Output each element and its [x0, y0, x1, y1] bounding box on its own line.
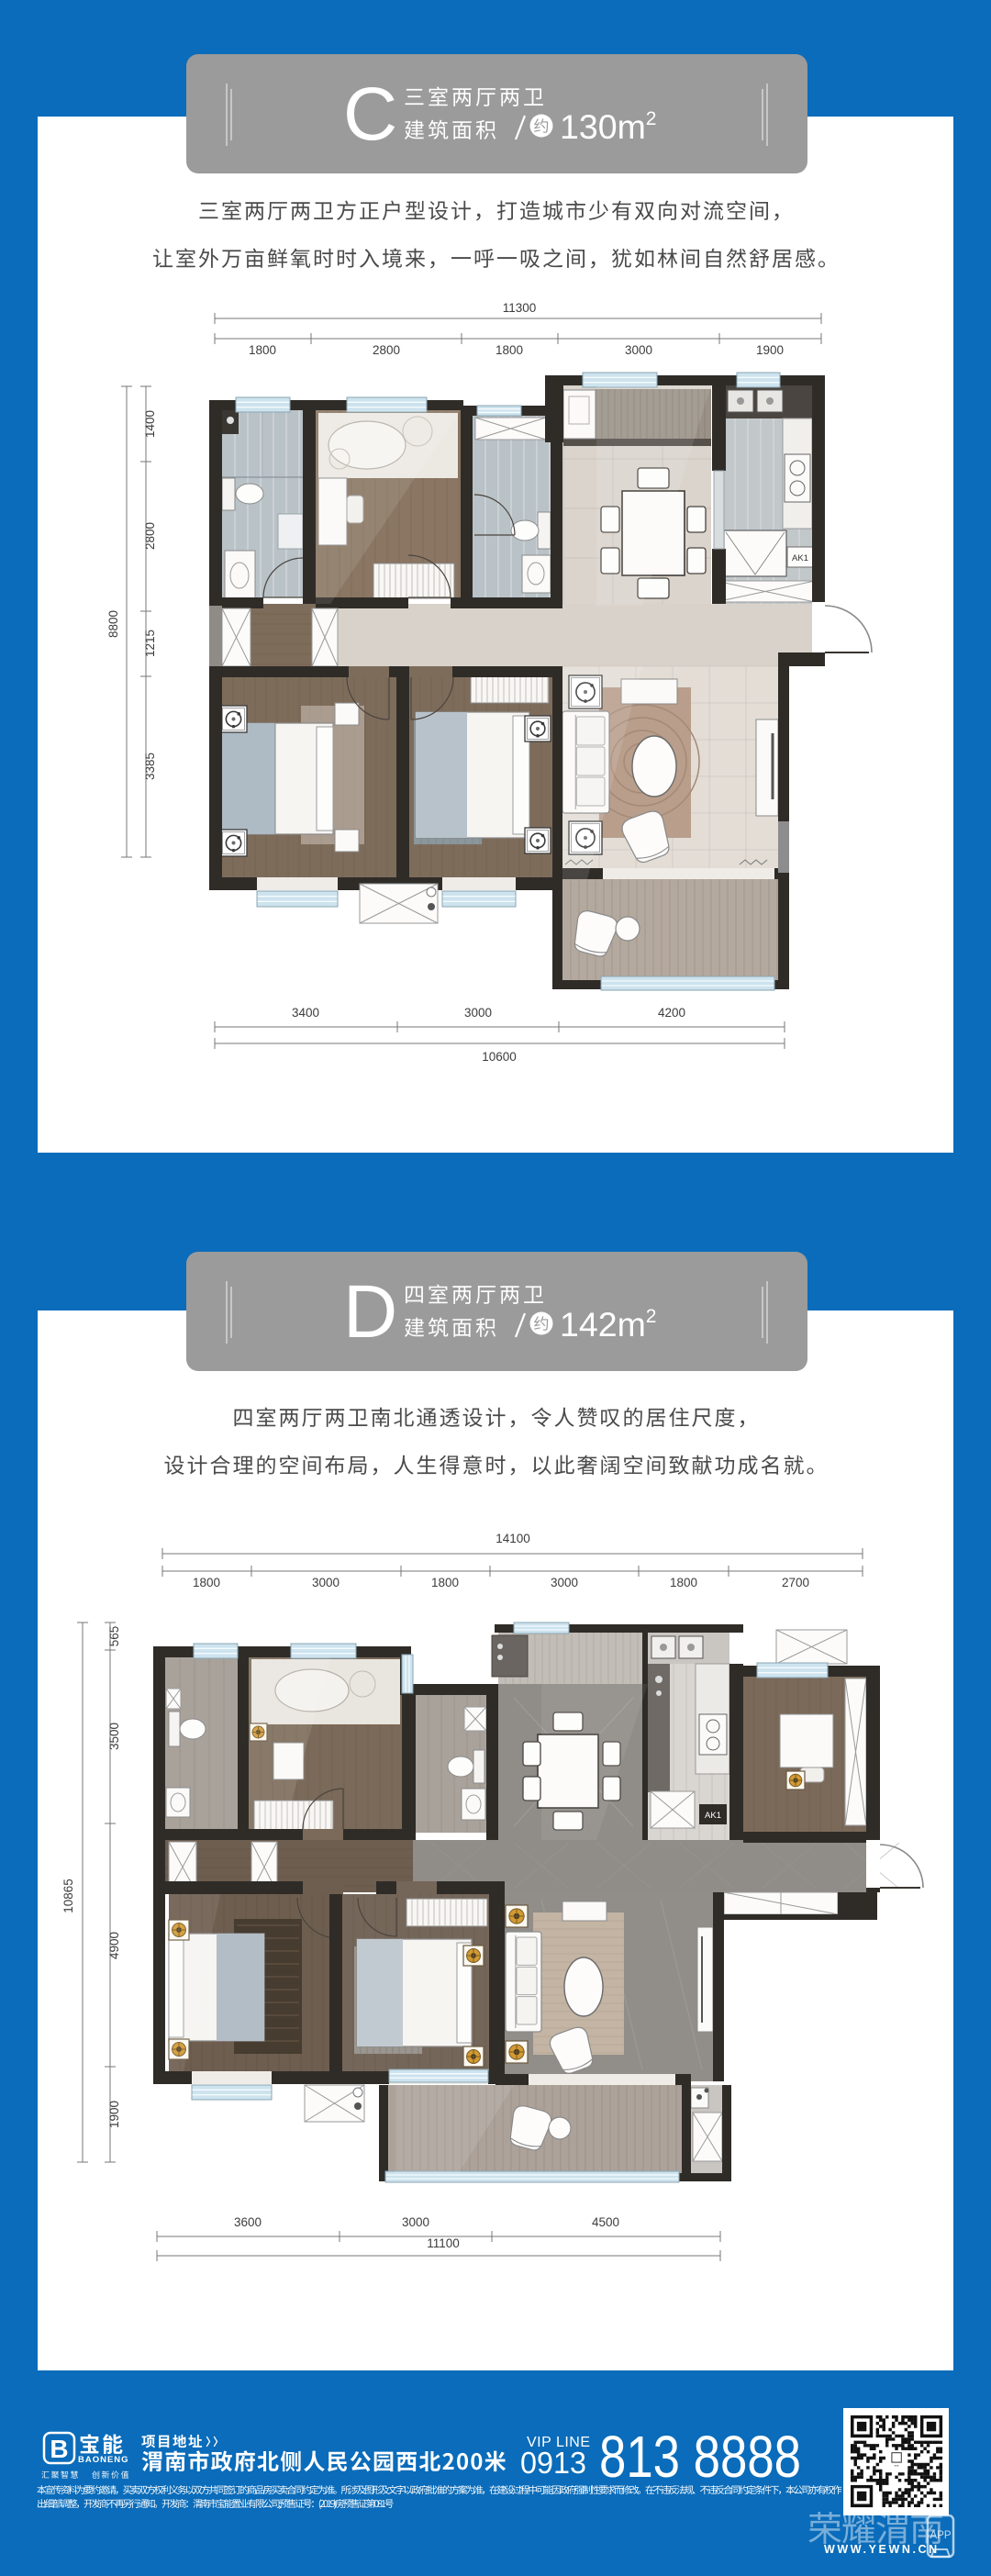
svg-text:565: 565 — [107, 1626, 121, 1647]
svg-text:1800: 1800 — [249, 343, 276, 357]
svg-text:14100: 14100 — [495, 1532, 530, 1545]
svg-text:***: *** — [894, 2464, 899, 2469]
svg-text:D: D — [343, 1270, 397, 1354]
svg-text:3400: 3400 — [292, 1006, 319, 1020]
svg-text:APP: APP — [930, 2530, 951, 2541]
svg-text:130m: 130m — [560, 107, 646, 146]
svg-text:1800: 1800 — [431, 1576, 459, 1589]
svg-text:B: B — [50, 2435, 68, 2463]
svg-text:10865: 10865 — [61, 1879, 75, 1913]
svg-text:813 8888: 813 8888 — [599, 2424, 801, 2490]
svg-text:3385: 3385 — [143, 753, 157, 780]
svg-text:4200: 4200 — [658, 1006, 685, 1020]
svg-text:1800: 1800 — [670, 1576, 697, 1589]
svg-text:142m: 142m — [560, 1305, 646, 1344]
svg-text:11300: 11300 — [503, 301, 537, 315]
svg-text:1900: 1900 — [107, 2101, 121, 2128]
svg-text:1400: 1400 — [143, 410, 157, 438]
svg-text:3600: 3600 — [234, 2215, 262, 2229]
svg-text:3000: 3000 — [551, 1576, 578, 1589]
svg-text:4900: 4900 — [107, 1932, 121, 1959]
svg-text:C: C — [343, 72, 397, 156]
svg-text:1215: 1215 — [143, 630, 157, 657]
svg-text:BAONENG: BAONENG — [78, 2455, 129, 2465]
svg-text:8800: 8800 — [106, 610, 120, 638]
svg-text:AK1: AK1 — [705, 1811, 721, 1821]
svg-text:2: 2 — [646, 1306, 657, 1327]
svg-text:3500: 3500 — [107, 1723, 121, 1750]
svg-text:AK1: AK1 — [792, 553, 808, 563]
svg-text:4500: 4500 — [592, 2215, 619, 2229]
svg-text:11100: 11100 — [427, 2236, 460, 2250]
svg-text:1800: 1800 — [495, 343, 523, 357]
svg-text:WWW.YEWN.CN: WWW.YEWN.CN — [824, 2543, 940, 2556]
svg-text:2700: 2700 — [782, 1576, 809, 1589]
svg-text:3000: 3000 — [625, 343, 652, 357]
svg-text:10600: 10600 — [482, 1050, 517, 1064]
svg-text:1900: 1900 — [756, 343, 784, 357]
svg-text:3000: 3000 — [402, 2215, 429, 2229]
svg-text:2800: 2800 — [143, 522, 157, 550]
svg-text:0913: 0913 — [520, 2446, 586, 2480]
svg-text:1800: 1800 — [193, 1576, 220, 1589]
svg-text:2: 2 — [646, 108, 657, 129]
svg-text:3000: 3000 — [464, 1006, 492, 1020]
svg-text:3000: 3000 — [312, 1576, 340, 1589]
svg-text:2800: 2800 — [373, 343, 400, 357]
